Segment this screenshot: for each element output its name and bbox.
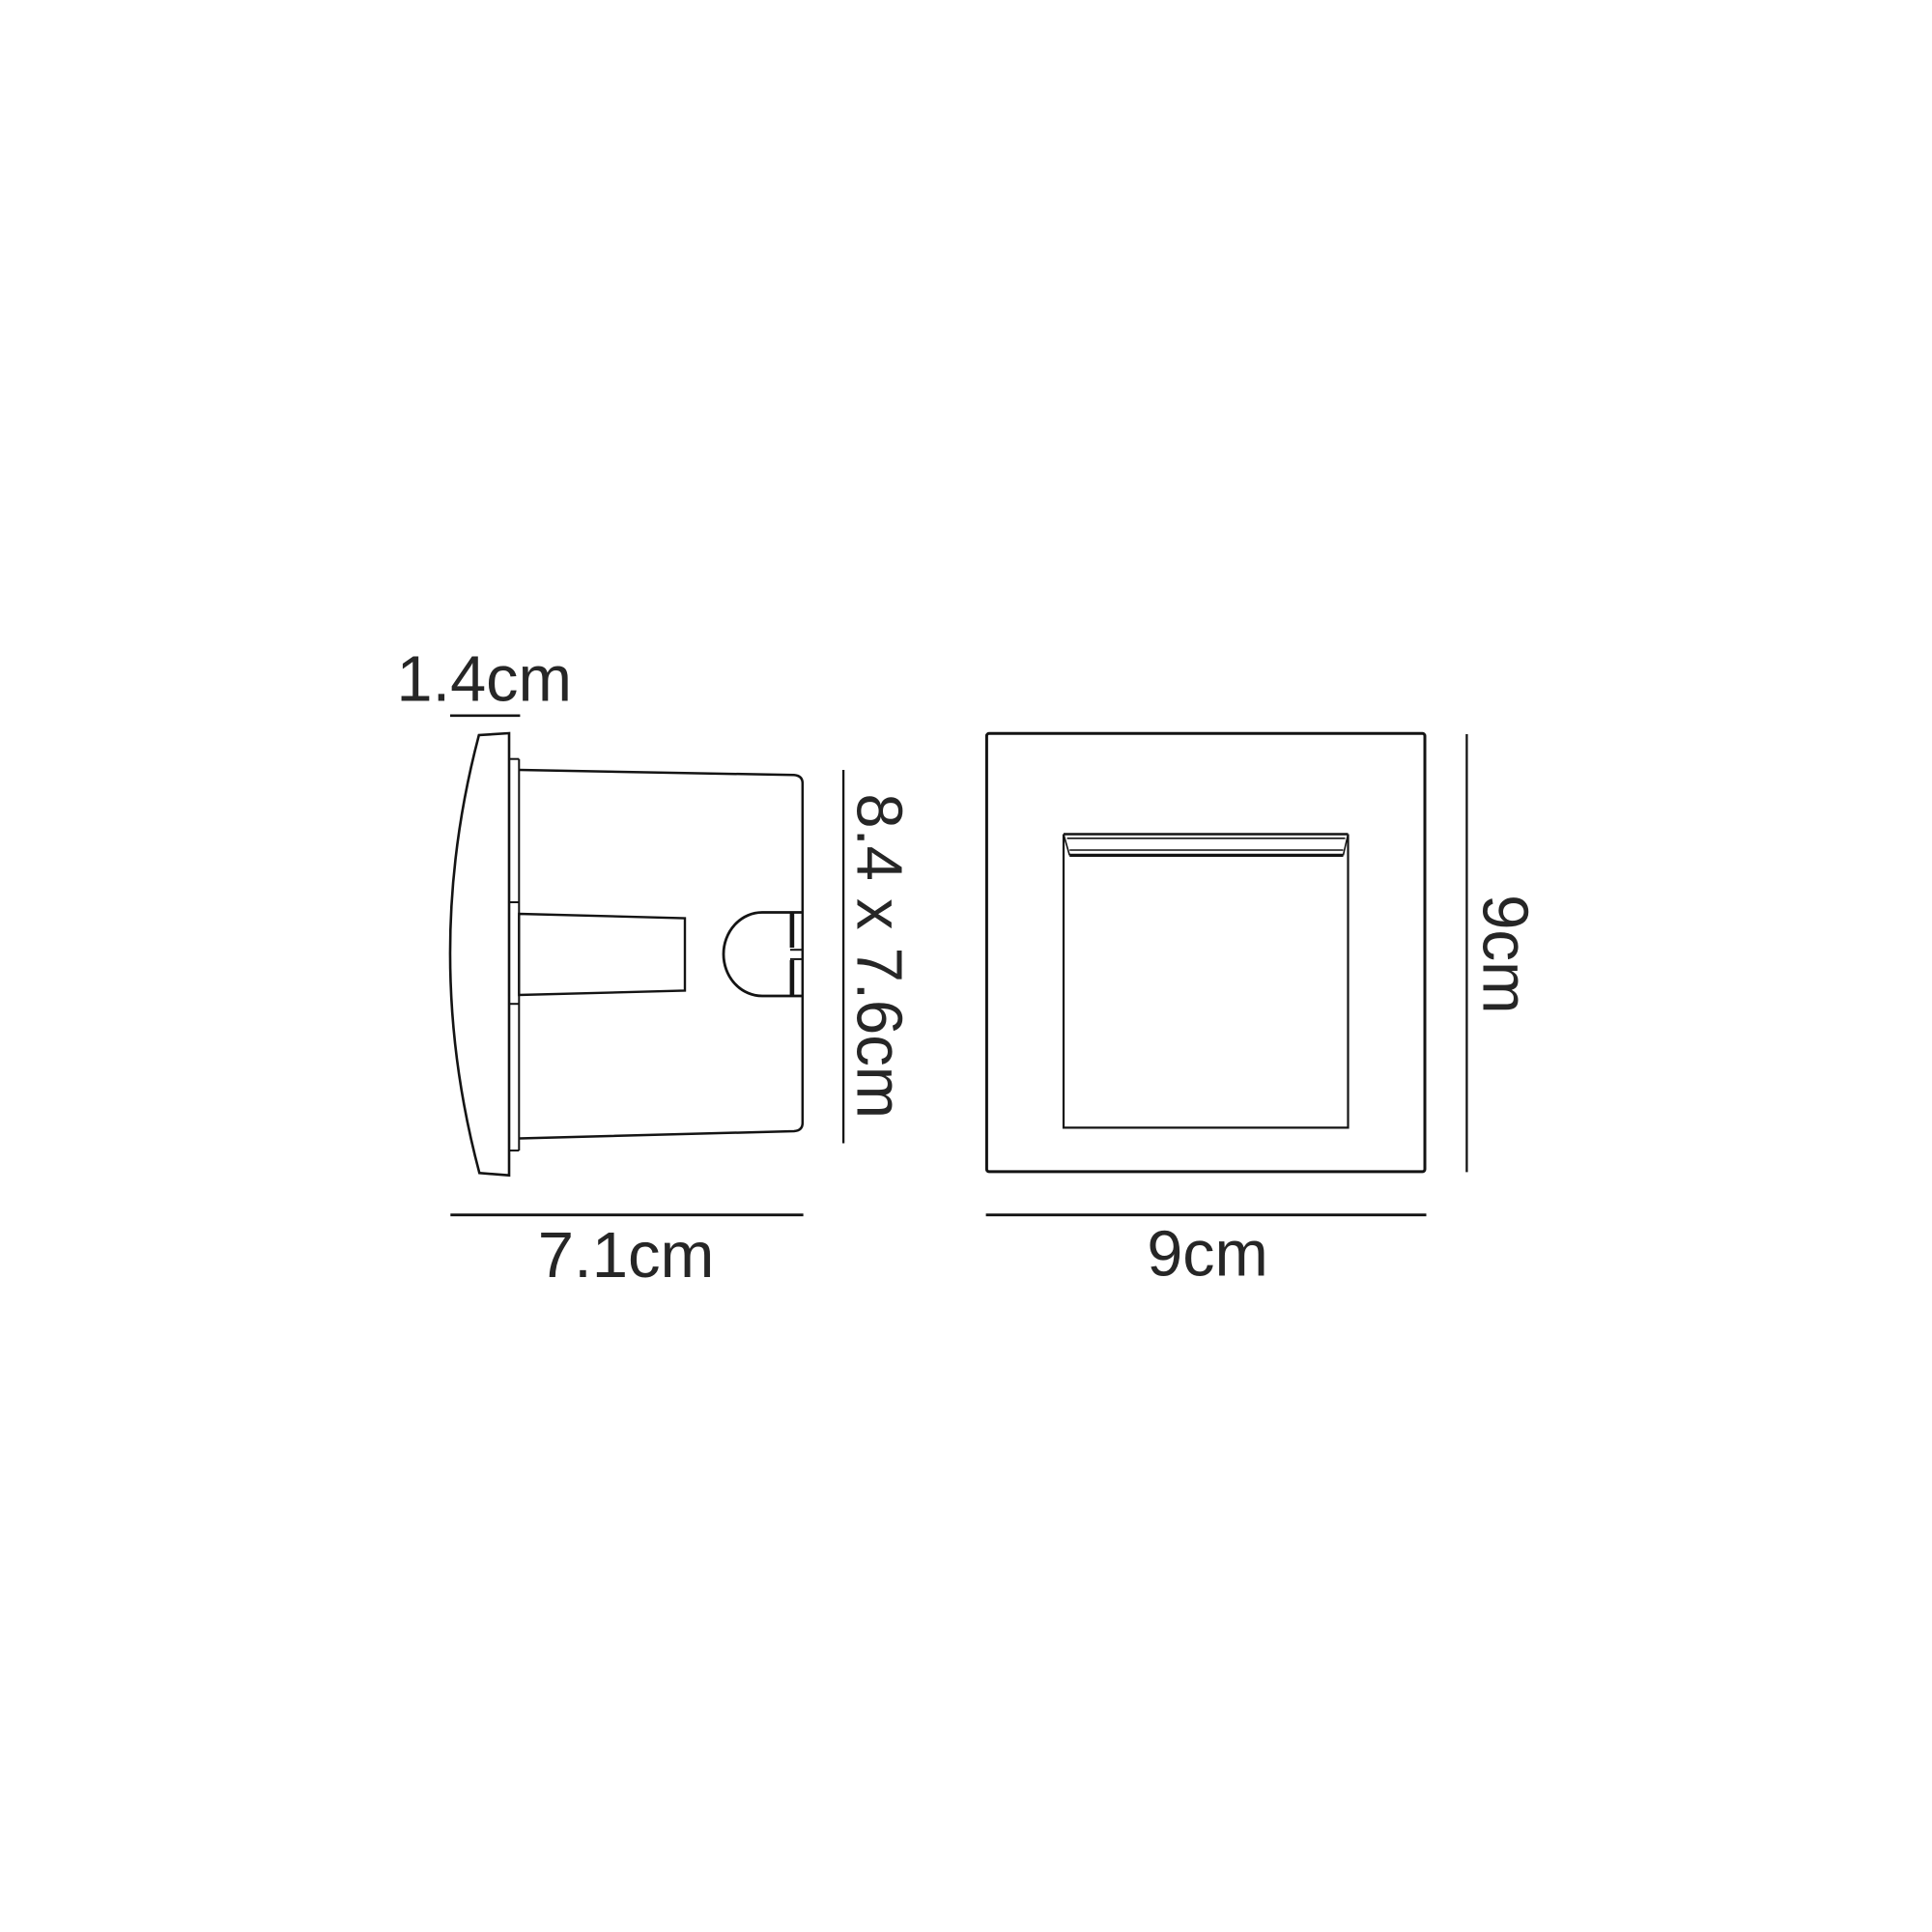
svg-text:7.1cm: 7.1cm [538, 1219, 715, 1292]
svg-text:9cm: 9cm [1147, 1218, 1267, 1291]
svg-text:8.4 x 7.6cm: 8.4 x 7.6cm [843, 793, 916, 1119]
svg-text:1.4cm: 1.4cm [397, 643, 573, 716]
svg-text:9cm: 9cm [1469, 895, 1542, 1013]
